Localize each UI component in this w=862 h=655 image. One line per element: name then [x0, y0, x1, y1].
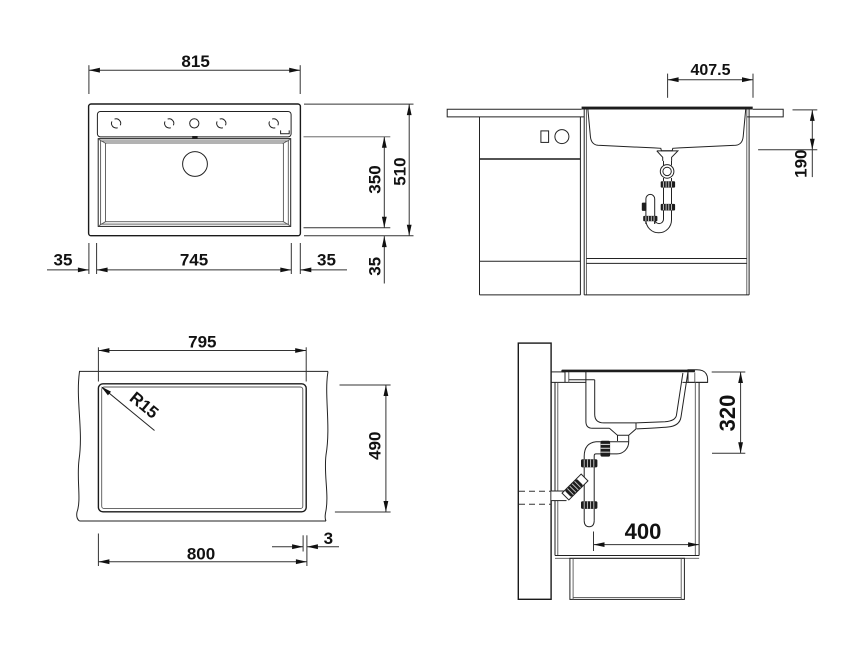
svg-text:400: 400 [625, 519, 662, 544]
svg-text:35: 35 [366, 257, 385, 276]
svg-text:745: 745 [180, 251, 208, 270]
svg-text:800: 800 [187, 545, 215, 564]
svg-text:35: 35 [317, 251, 336, 270]
svg-text:795: 795 [188, 333, 216, 352]
svg-text:407.5: 407.5 [690, 62, 730, 79]
svg-text:320: 320 [715, 395, 740, 432]
svg-text:190: 190 [792, 150, 811, 178]
svg-text:350: 350 [365, 165, 384, 193]
svg-text:3: 3 [324, 529, 333, 548]
svg-text:35: 35 [54, 251, 73, 270]
svg-text:510: 510 [391, 157, 410, 185]
svg-text:815: 815 [181, 52, 209, 71]
svg-text:490: 490 [365, 432, 384, 460]
